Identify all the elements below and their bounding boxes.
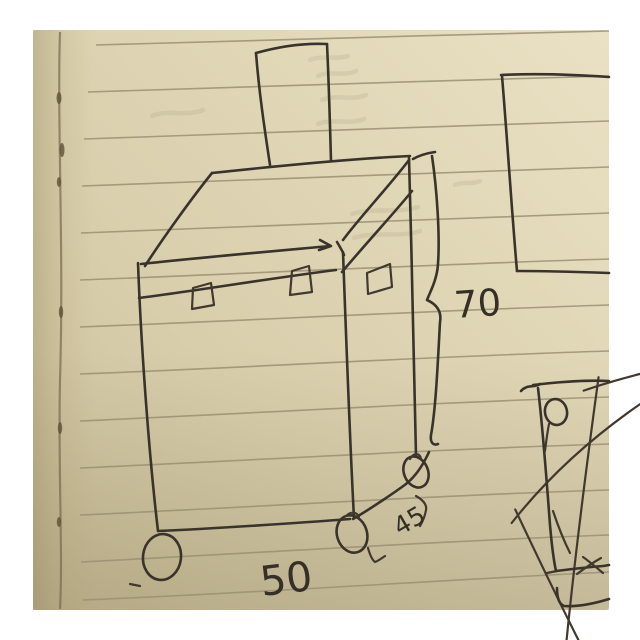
notebook-sketch-svg: 70 50 45: [0, 0, 640, 640]
height-value: 70: [453, 281, 503, 327]
notebook-photo: 70 50 45: [0, 0, 640, 640]
width-value: 50: [257, 552, 315, 606]
